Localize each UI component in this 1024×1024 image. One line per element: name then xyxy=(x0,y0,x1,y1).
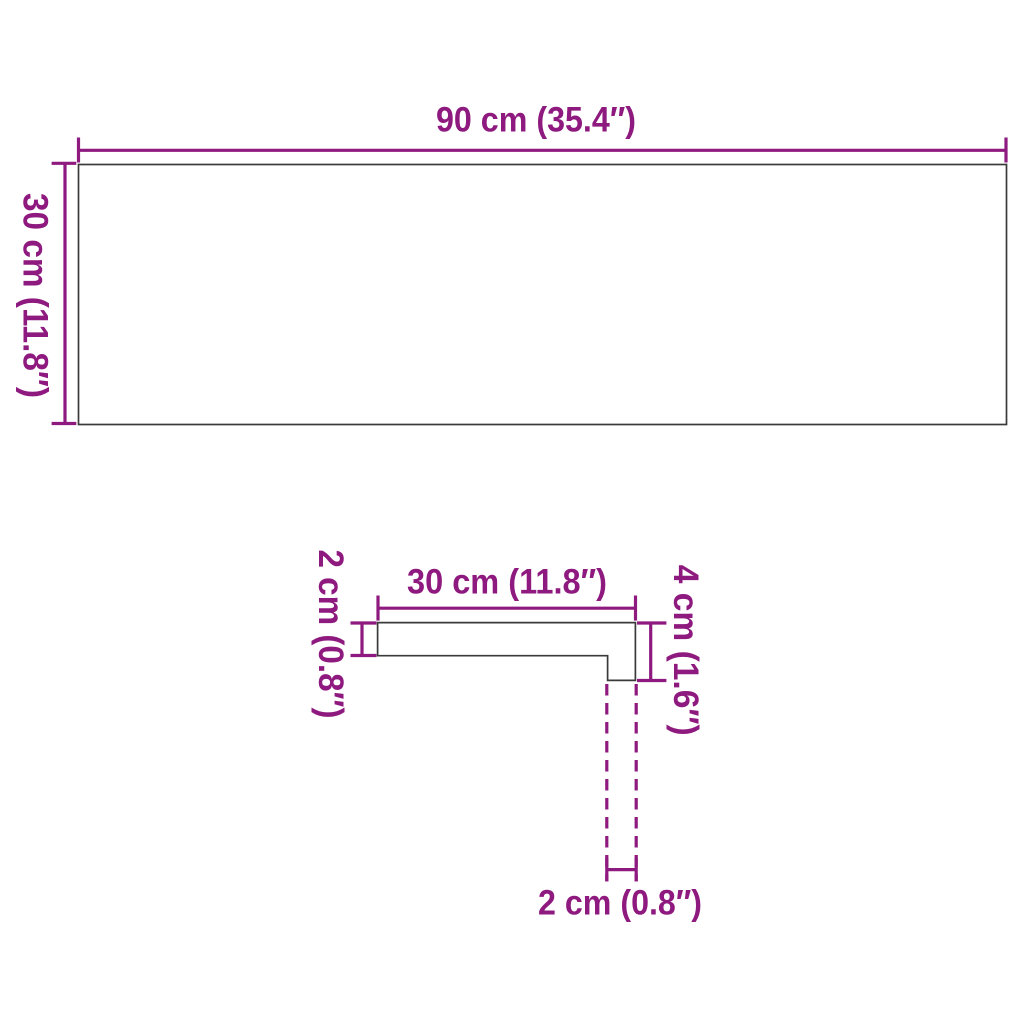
svg-text:2 cm (0.8″): 2 cm (0.8″) xyxy=(311,550,350,719)
svg-text:90 cm (35.4″): 90 cm (35.4″) xyxy=(436,101,636,140)
svg-text:30 cm (11.8″): 30 cm (11.8″) xyxy=(16,193,55,398)
svg-text:30 cm (11.8″): 30 cm (11.8″) xyxy=(407,562,607,601)
svg-text:4 cm (1.6″): 4 cm (1.6″) xyxy=(666,565,705,736)
svg-text:2 cm (0.8″): 2 cm (0.8″) xyxy=(538,884,702,923)
